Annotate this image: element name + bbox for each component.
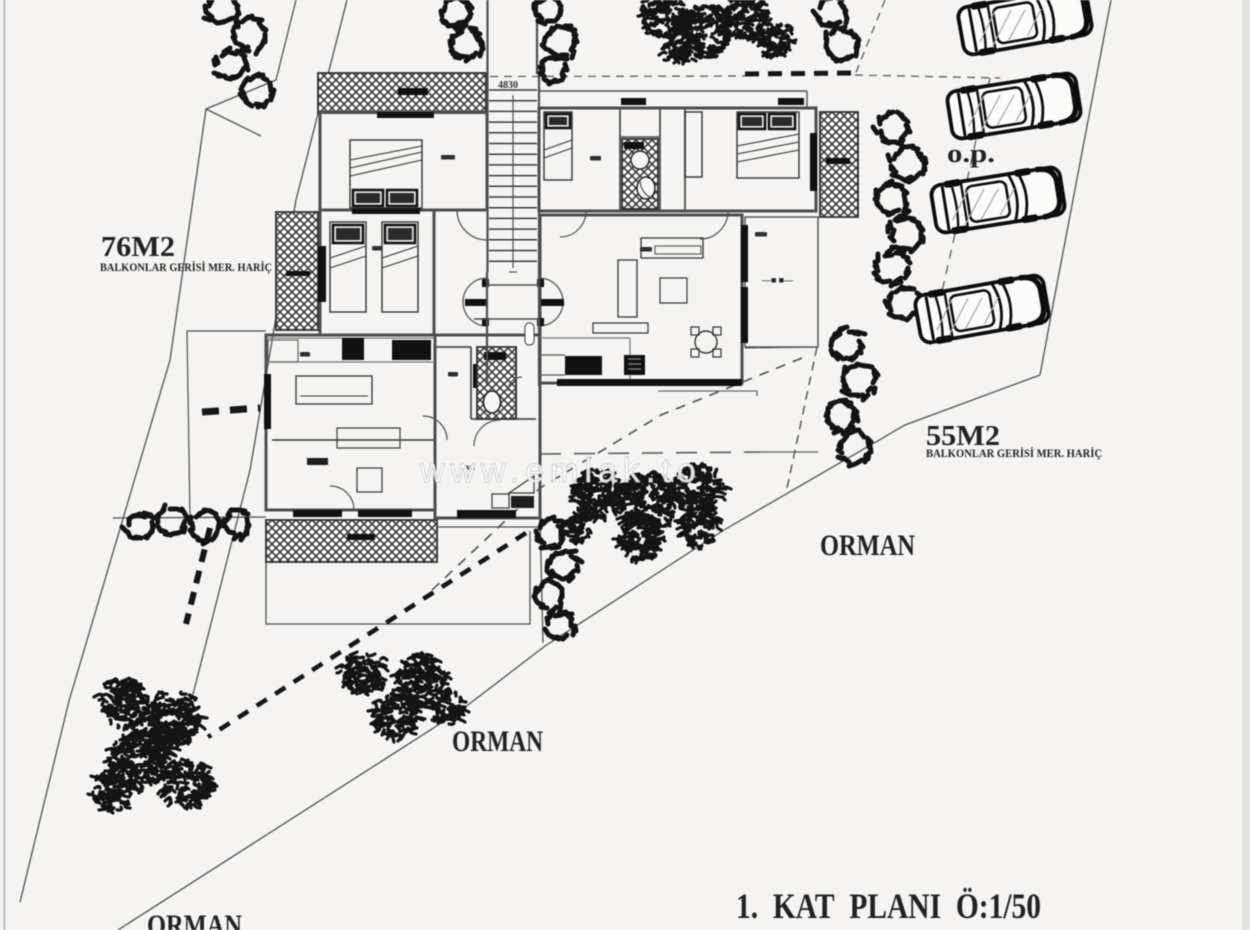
svg-text:4830: 4830 xyxy=(498,80,518,91)
svg-text:BALKONLAR GERİSİ MER. HARİÇ: BALKONLAR GERİSİ MER. HARİÇ xyxy=(100,260,272,274)
svg-text:1. KAT PLANI Ö:1/50: 1. KAT PLANI Ö:1/50 xyxy=(736,886,1041,926)
svg-text:ORMAN: ORMAN xyxy=(452,725,543,758)
svg-text:ORMAN: ORMAN xyxy=(820,529,915,562)
svg-text:www.emlak.to: www.emlak.to xyxy=(419,452,702,490)
svg-text:o.p.: o.p. xyxy=(947,139,995,168)
svg-text:BALKONLAR GERİSİ MER. HARİÇ: BALKONLAR GERİSİ MER. HARİÇ xyxy=(926,446,1102,460)
svg-text:76M2: 76M2 xyxy=(101,231,175,263)
svg-text:—■ ■—: —■ ■— xyxy=(761,275,794,285)
svg-text:ORMAN: ORMAN xyxy=(147,909,242,930)
